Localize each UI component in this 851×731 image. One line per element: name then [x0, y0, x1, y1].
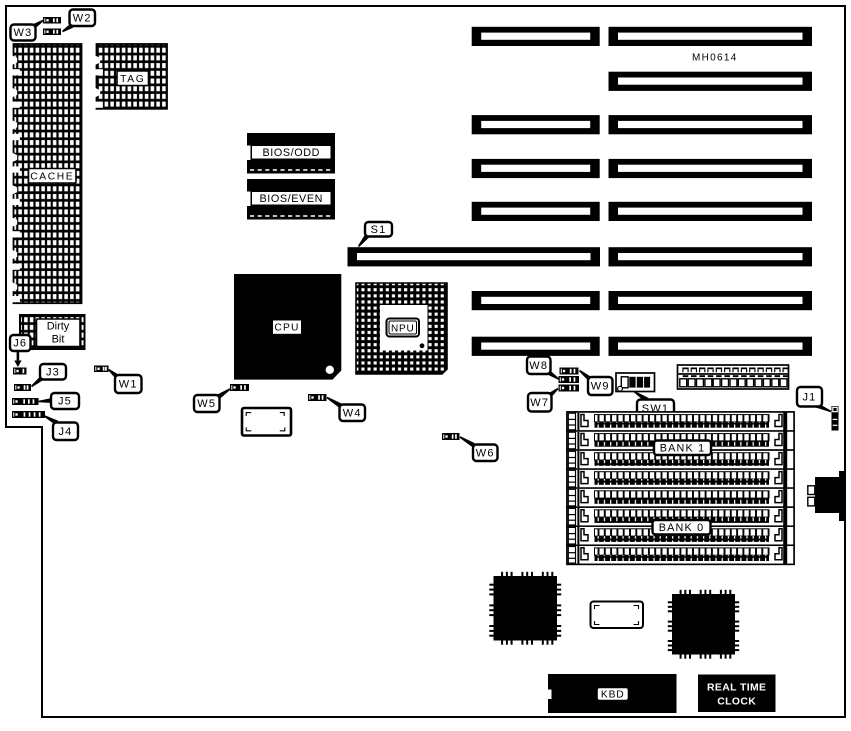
- svg-text:J5: J5: [58, 396, 72, 408]
- svg-text:CPU: CPU: [274, 323, 299, 334]
- svg-text:BANK 1: BANK 1: [660, 442, 706, 454]
- svg-text:J3: J3: [46, 366, 60, 378]
- svg-text:J1: J1: [802, 391, 816, 403]
- svg-text:NPU: NPU: [391, 323, 415, 334]
- svg-text:S1: S1: [371, 224, 387, 236]
- svg-text:W6: W6: [476, 447, 495, 459]
- svg-text:W1: W1: [119, 379, 138, 391]
- svg-text:J4: J4: [58, 426, 72, 438]
- svg-text:W2: W2: [73, 12, 92, 24]
- svg-text:W7: W7: [530, 397, 549, 409]
- svg-text:W9: W9: [591, 381, 610, 393]
- svg-text:BIOS/EVEN: BIOS/EVEN: [259, 193, 323, 205]
- svg-text:W8: W8: [529, 360, 548, 372]
- svg-text:REAL TIME: REAL TIME: [707, 683, 766, 694]
- svg-text:Dirty: Dirty: [47, 321, 70, 333]
- svg-text:TAG: TAG: [120, 74, 145, 85]
- svg-text:KBD: KBD: [601, 690, 625, 701]
- svg-text:CLOCK: CLOCK: [717, 697, 756, 708]
- svg-text:Bit: Bit: [52, 334, 65, 346]
- svg-text:CACHE: CACHE: [30, 171, 74, 182]
- svg-text:W5: W5: [197, 398, 216, 410]
- svg-text:J6: J6: [13, 338, 27, 350]
- svg-text:MH0614: MH0614: [692, 53, 738, 64]
- svg-text:BIOS/ODD: BIOS/ODD: [262, 147, 320, 159]
- svg-text:BANK 0: BANK 0: [659, 522, 705, 534]
- svg-text:W3: W3: [14, 27, 33, 39]
- svg-text:W4: W4: [343, 407, 362, 419]
